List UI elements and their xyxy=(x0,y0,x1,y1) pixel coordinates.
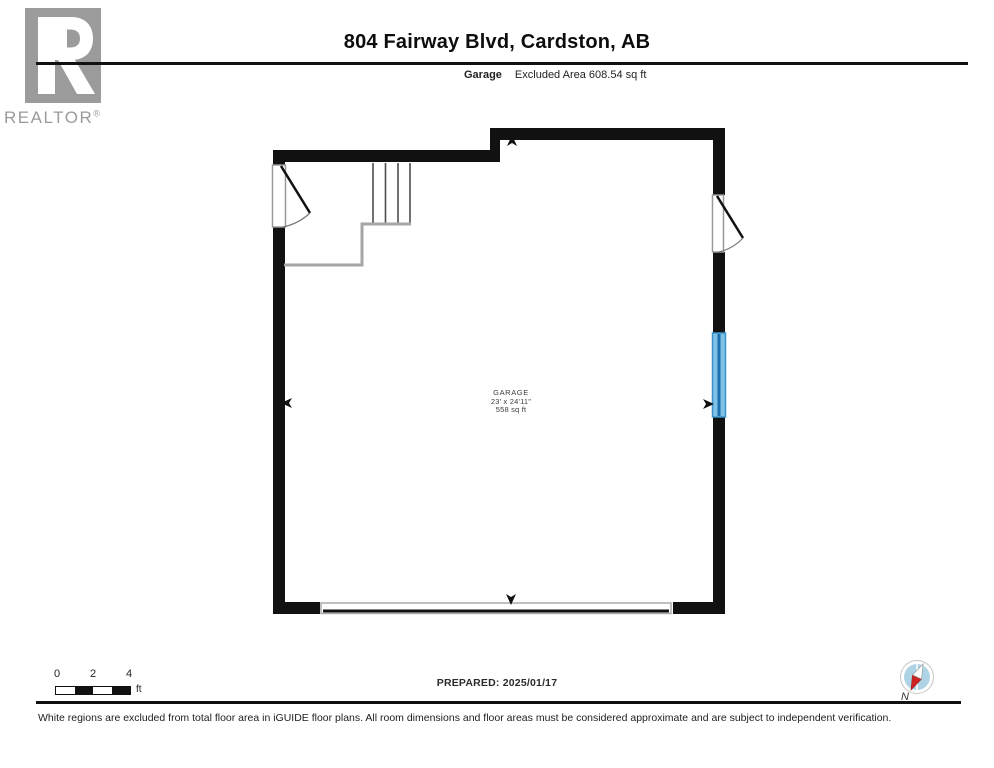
realtor-logo-icon xyxy=(25,8,101,103)
stairs xyxy=(373,163,410,223)
window xyxy=(713,333,726,417)
prepared-date: PREPARED: 2025/01/17 xyxy=(0,677,994,689)
left-door xyxy=(273,165,311,227)
floorplan-page: REALTOR® 804 Fairway Blvd, Cardston, AB … xyxy=(0,0,994,768)
disclaimer-text: White regions are excluded from total fl… xyxy=(38,712,978,724)
floorplan-drawing xyxy=(0,0,994,768)
walls xyxy=(273,128,725,614)
stair-landing-outline xyxy=(284,224,411,265)
footer-divider xyxy=(36,701,961,704)
room-area: 558 sq ft xyxy=(451,406,571,415)
garage-door xyxy=(321,603,671,614)
header-divider xyxy=(36,62,968,65)
room-label: GARAGE 23' x 24'11" 558 sq ft xyxy=(451,389,571,415)
realtor-logo xyxy=(25,8,101,108)
wall-markers xyxy=(281,135,714,605)
right-door xyxy=(713,195,744,252)
